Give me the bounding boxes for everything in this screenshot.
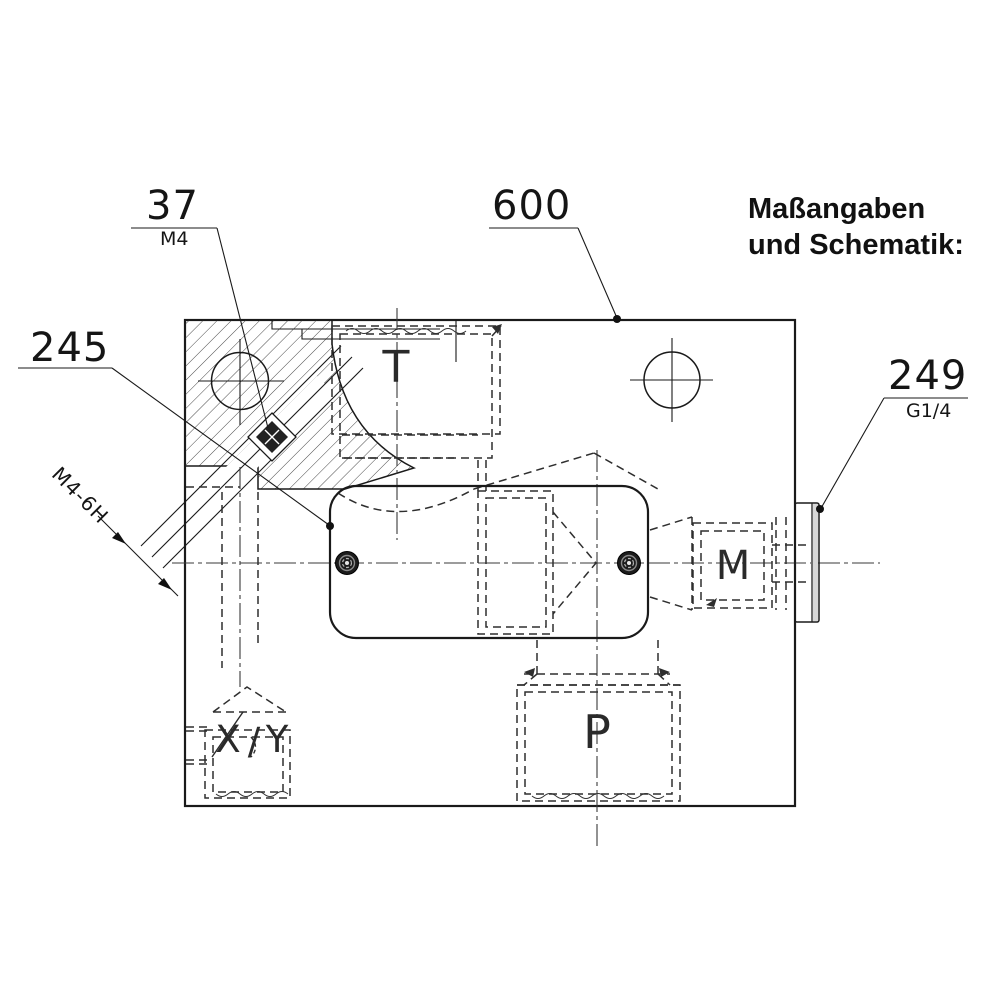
label-y-port: Y bbox=[265, 718, 289, 761]
manifold-drawing: T P M X / Y bbox=[0, 0, 1000, 1000]
bore-top-right bbox=[630, 338, 713, 422]
label-xy-slash: / bbox=[248, 720, 261, 763]
mounting-screw-left bbox=[336, 552, 359, 575]
arrowhead bbox=[158, 578, 172, 590]
dim-600-label: 600 bbox=[492, 186, 571, 226]
dim-249-sub-label: G1/4 bbox=[906, 402, 951, 421]
break-wavy-line bbox=[532, 794, 664, 799]
arrowhead bbox=[524, 668, 535, 677]
dim-249-label: 249 bbox=[888, 356, 967, 396]
heading-line-2: und Schematik: bbox=[748, 228, 964, 264]
technical-drawing-page: T P M X / Y 37 M4 600 245 249 G1/4 M4-6H… bbox=[0, 0, 1000, 1000]
dim-245-label: 245 bbox=[30, 328, 109, 368]
label-t-port: T bbox=[382, 342, 410, 393]
drawing-heading: Maßangaben und Schematik: bbox=[748, 192, 964, 264]
arrowhead bbox=[112, 532, 126, 544]
dim-37-sub-label: M4 bbox=[160, 230, 188, 249]
heading-line-1: Maßangaben bbox=[748, 192, 964, 228]
mounting-screw-right bbox=[618, 552, 641, 575]
label-x-port: X bbox=[215, 718, 240, 761]
t-port-cavity bbox=[332, 324, 658, 512]
valve-cavity-rounded-rect bbox=[330, 486, 648, 638]
leader-600 bbox=[489, 228, 621, 323]
dim-37-label: 37 bbox=[146, 186, 199, 226]
m4-6h-dimension-line bbox=[98, 516, 178, 596]
label-m-port: M bbox=[716, 543, 751, 589]
label-p-port: P bbox=[583, 705, 611, 759]
